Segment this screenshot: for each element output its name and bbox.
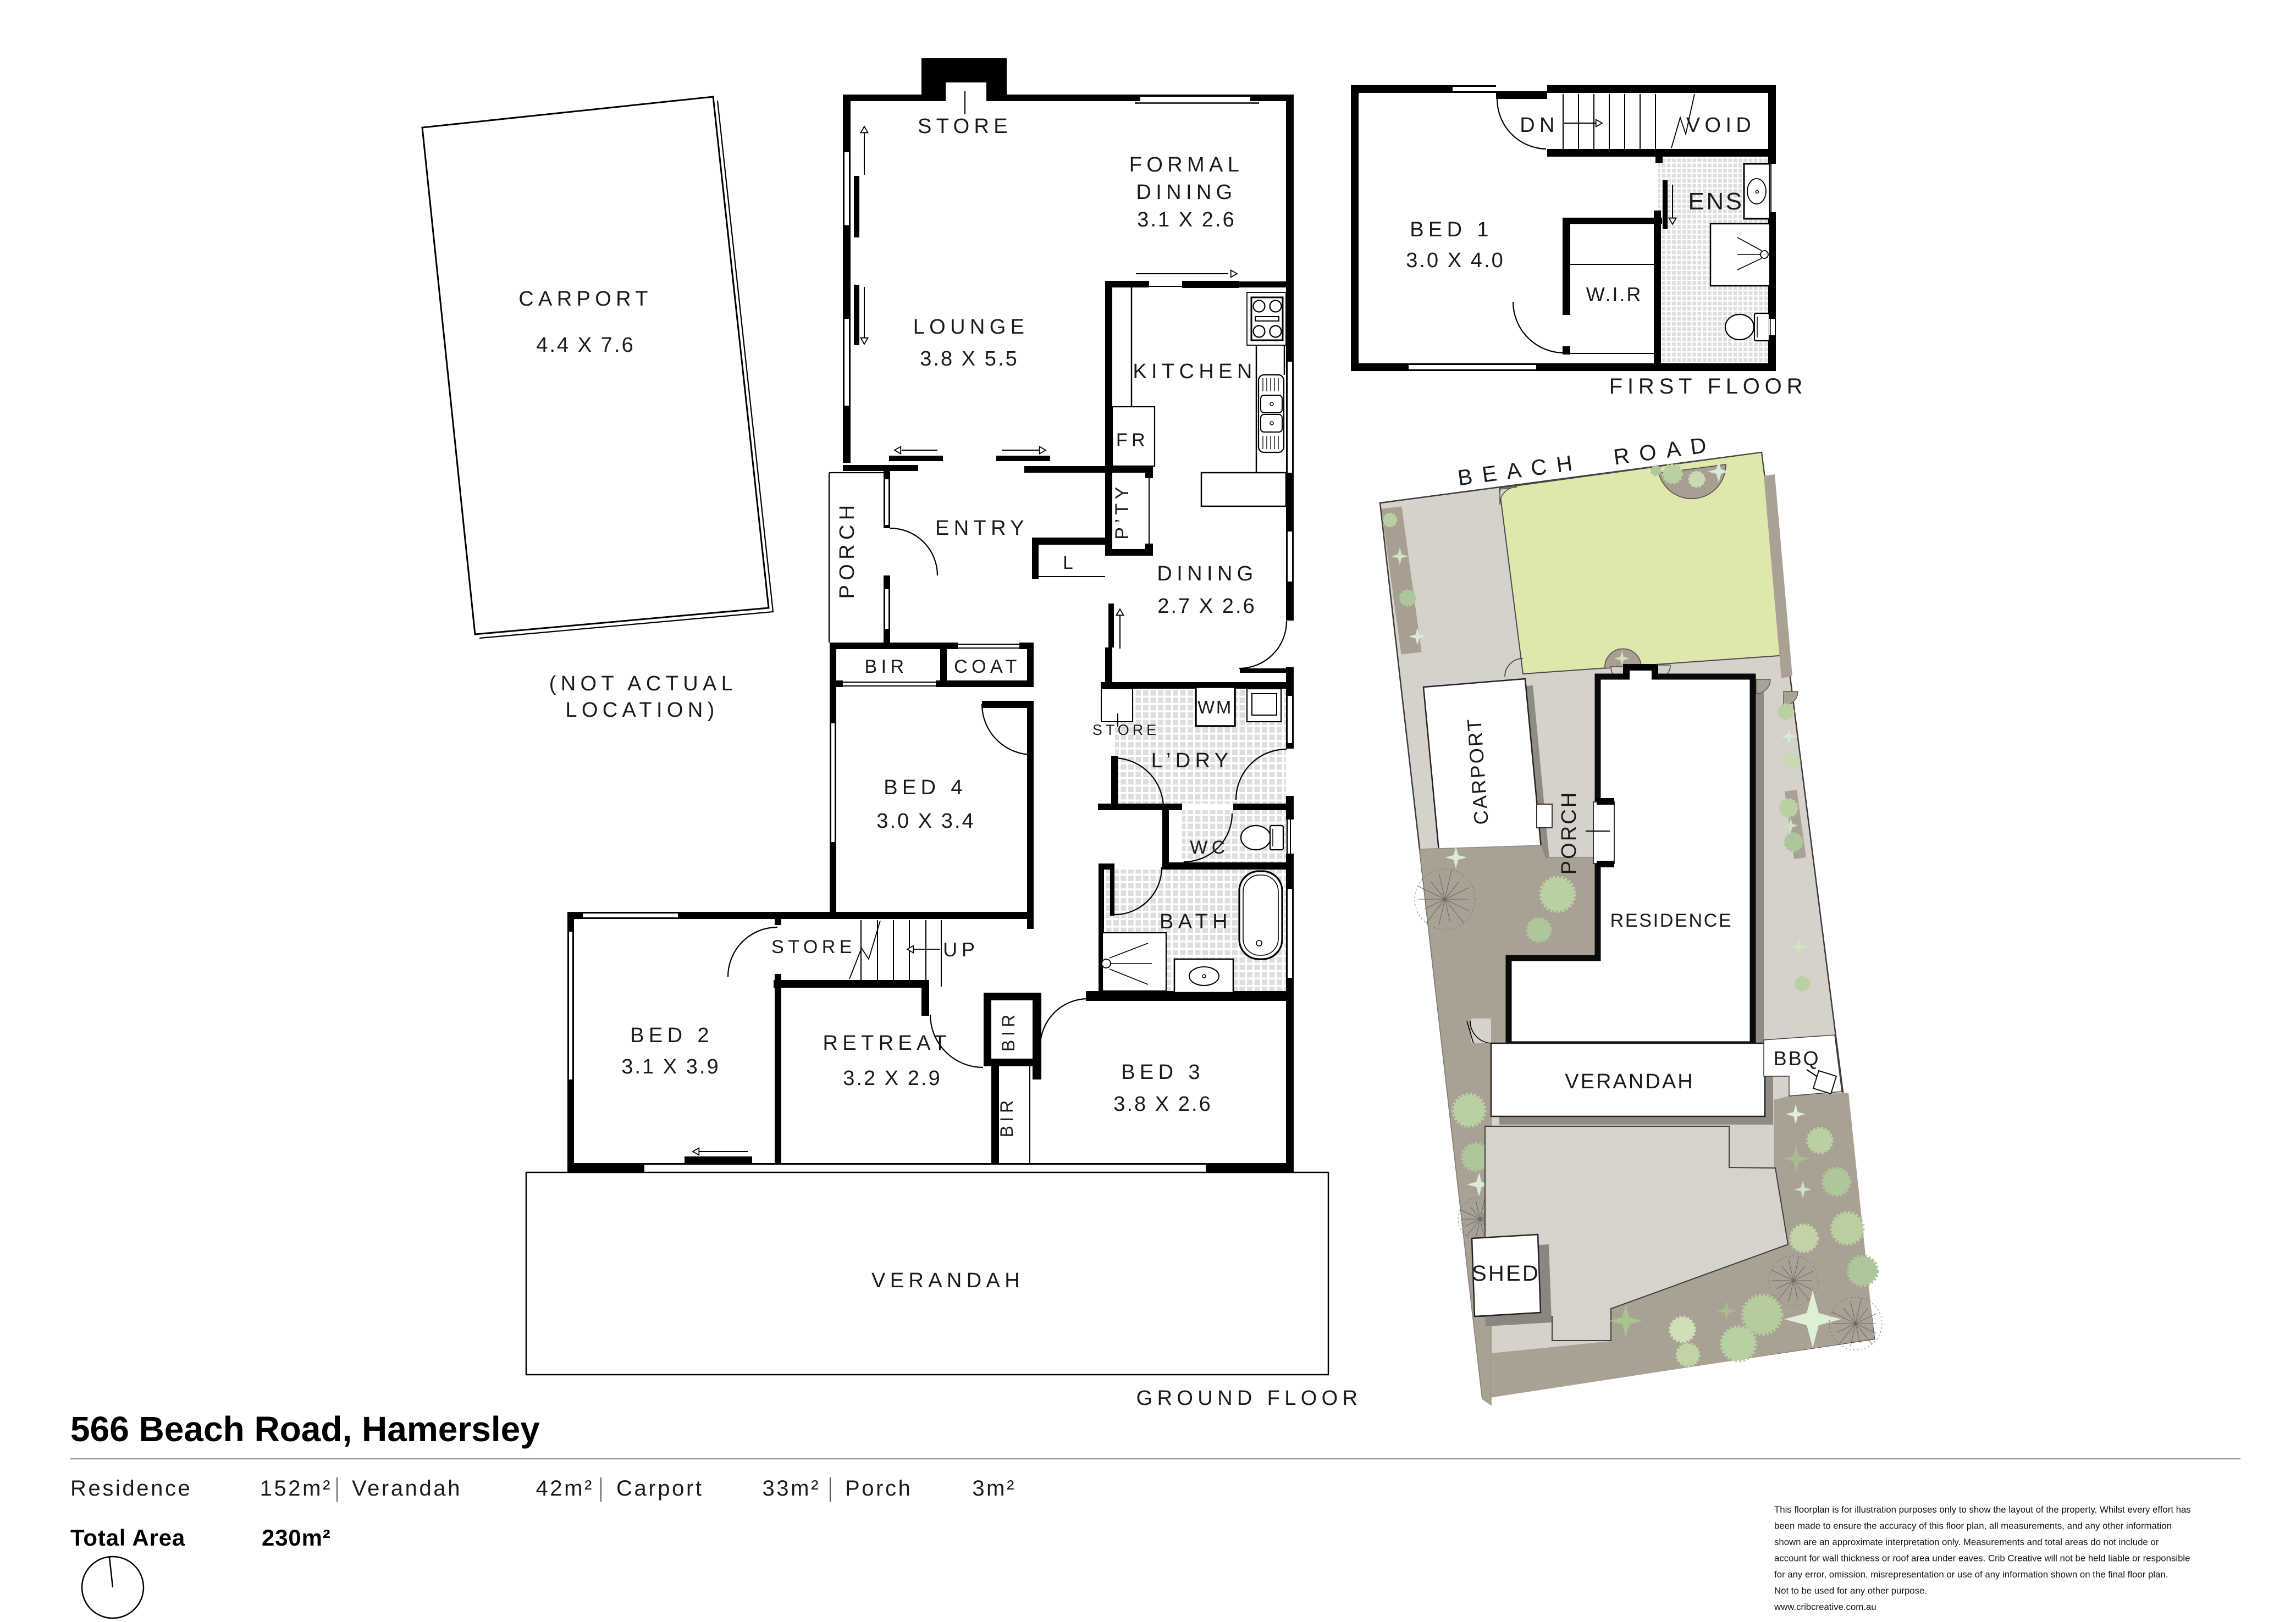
svg-text:ENTRY: ENTRY: [935, 517, 1029, 540]
svg-text:Carport: Carport: [616, 1476, 704, 1501]
svg-text:P’TY: P’TY: [1112, 483, 1133, 540]
svg-text:33m²: 33m²: [762, 1476, 820, 1501]
svg-text:W.I.R: W.I.R: [1586, 283, 1642, 306]
svg-text:COAT: COAT: [954, 656, 1021, 677]
svg-text:DINING: DINING: [1136, 181, 1237, 204]
svg-text:PORCH: PORCH: [1558, 791, 1581, 874]
svg-text:Total Area: Total Area: [70, 1525, 185, 1551]
svg-text:for any error, omission, misre: for any error, omission, misrepresentati…: [1774, 1569, 2168, 1580]
svg-text:152m²: 152m²: [260, 1476, 332, 1501]
svg-text:230m²: 230m²: [262, 1525, 331, 1551]
svg-text:UP: UP: [943, 938, 979, 961]
svg-text:BBQ: BBQ: [1774, 1047, 1820, 1070]
svg-text:Residence: Residence: [70, 1476, 192, 1501]
svg-text:3.8 X 2.6: 3.8 X 2.6: [1113, 1093, 1212, 1116]
svg-text:BIR: BIR: [864, 656, 908, 677]
svg-text:L: L: [1063, 552, 1077, 573]
svg-text:CARPORT: CARPORT: [518, 287, 653, 311]
svg-text:3m²: 3m²: [972, 1476, 1016, 1501]
svg-text:3.1 X 3.9: 3.1 X 3.9: [621, 1055, 720, 1078]
svg-text:BED 3: BED 3: [1121, 1061, 1205, 1084]
svg-text:BED 4: BED 4: [884, 776, 967, 799]
svg-text:shown are an approximate inter: shown are an approximate interpretation …: [1774, 1537, 2159, 1547]
svg-text:ENS: ENS: [1688, 188, 1743, 215]
svg-text:L’DRY: L’DRY: [1151, 749, 1233, 772]
svg-text:STORE: STORE: [771, 937, 856, 957]
svg-text:WC: WC: [1190, 837, 1229, 858]
svg-text:RETREAT: RETREAT: [823, 1032, 951, 1055]
svg-text:FORMAL: FORMAL: [1129, 153, 1244, 176]
svg-text:42m²: 42m²: [536, 1476, 594, 1501]
svg-text:KITCHEN: KITCHEN: [1133, 360, 1256, 383]
svg-text:2.7 X 2.6: 2.7 X 2.6: [1157, 595, 1256, 618]
svg-text:GROUND FLOOR: GROUND FLOOR: [1136, 1387, 1362, 1410]
svg-text:STORE: STORE: [918, 115, 1012, 138]
svg-text:BIR: BIR: [998, 1011, 1018, 1051]
svg-text:been made to ensure the accura: been made to ensure the accuracy of this…: [1774, 1521, 2172, 1531]
svg-text:account for wall thickness or: account for wall thickness or roof area …: [1774, 1553, 2190, 1564]
svg-text:SHED: SHED: [1472, 1261, 1540, 1286]
svg-text:566 Beach Road, Hamersley: 566 Beach Road, Hamersley: [70, 1409, 540, 1449]
svg-text:Porch: Porch: [845, 1476, 913, 1501]
svg-text:3.2 X 2.9: 3.2 X 2.9: [843, 1067, 941, 1090]
svg-text:DINING: DINING: [1157, 562, 1257, 585]
svg-text:3.0 X 4.0: 3.0 X 4.0: [1406, 249, 1504, 272]
svg-text:Verandah: Verandah: [352, 1476, 462, 1501]
svg-text:4.4 X 7.6: 4.4 X 7.6: [536, 334, 634, 357]
svg-text:www.cribcreative.com.au: www.cribcreative.com.au: [1774, 1602, 1876, 1612]
svg-text:DN: DN: [1520, 114, 1559, 137]
svg-text:BED 2: BED 2: [630, 1024, 714, 1047]
svg-text:3.1 X 2.6: 3.1 X 2.6: [1137, 208, 1235, 231]
svg-text:This floorplan is for illustra: This floorplan is for illustration purpo…: [1774, 1504, 2191, 1515]
svg-text:BIR: BIR: [997, 1097, 1017, 1137]
svg-text:Not to be used for any other p: Not to be used for any other purpose.: [1774, 1586, 1927, 1596]
svg-text:BATH: BATH: [1160, 910, 1232, 933]
svg-text:(NOT ACTUAL: (NOT ACTUAL: [549, 672, 738, 695]
svg-text:FIRST FLOOR: FIRST FLOOR: [1609, 374, 1808, 398]
svg-text:VERANDAH: VERANDAH: [871, 1269, 1024, 1292]
svg-text:3.0 X 3.4: 3.0 X 3.4: [876, 810, 975, 833]
svg-text:BED 1: BED 1: [1410, 218, 1493, 241]
svg-text:PORCH: PORCH: [836, 500, 859, 599]
svg-text:LOCATION): LOCATION): [565, 699, 719, 722]
svg-text:VOID: VOID: [1686, 114, 1756, 137]
svg-text:STORE: STORE: [1092, 722, 1160, 738]
svg-text:WM: WM: [1197, 697, 1233, 717]
svg-text:LOUNGE: LOUNGE: [913, 315, 1029, 339]
svg-text:VERANDAH: VERANDAH: [1565, 1070, 1694, 1093]
svg-text:FR: FR: [1116, 430, 1149, 451]
svg-text:RESIDENCE: RESIDENCE: [1610, 910, 1733, 931]
svg-text:3.8 X 5.5: 3.8 X 5.5: [920, 347, 1018, 370]
